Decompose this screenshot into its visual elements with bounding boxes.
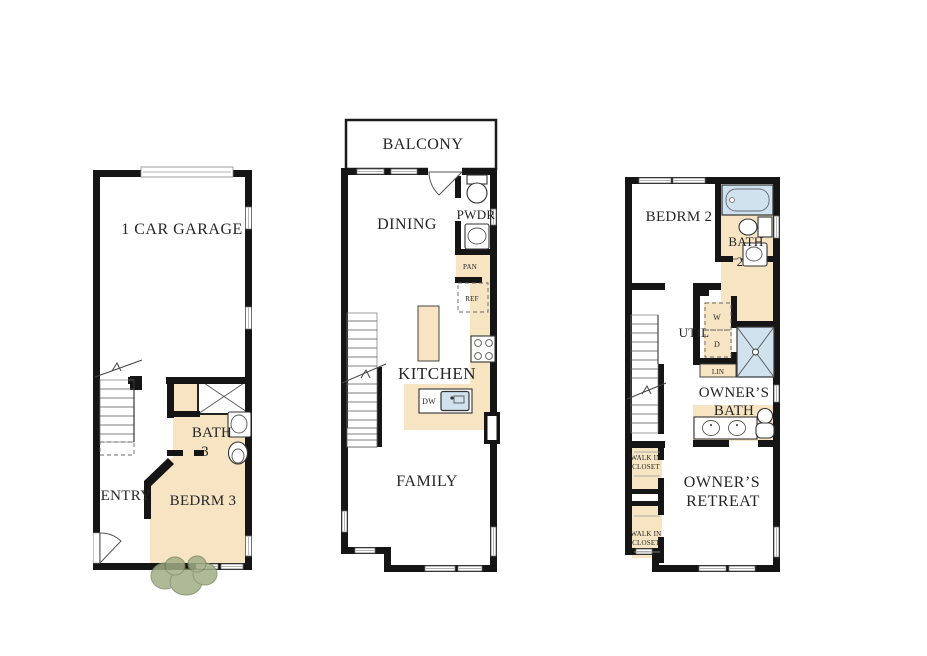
family-label: FAMILY <box>396 473 458 490</box>
kitchen-island <box>418 306 439 361</box>
floor-plan-canvas: 1 CAR GARAGE ENTRY BEDRM 3 BATH 3 <box>0 0 927 656</box>
bedrm3-label: BEDRM 3 <box>170 493 237 509</box>
washer-label: W <box>713 313 721 322</box>
owners-retreat-label-line1: OWNER’S <box>684 474 760 491</box>
pantry-label: PAN <box>463 263 477 271</box>
owners-toilet-icon <box>756 409 774 439</box>
bath3-label-line1: BATH <box>192 425 232 441</box>
refrigerator-label: REF <box>465 295 478 303</box>
bedrm2-label: BEDRM 2 <box>646 209 713 225</box>
entry-label: ENTRY <box>101 488 152 504</box>
pwdr-toilet-icon <box>467 175 487 203</box>
bath3-toilet-icon <box>229 442 248 464</box>
dishwasher-label: DW <box>422 397 436 406</box>
linen-label: LIN <box>712 368 724 376</box>
garage-door <box>141 167 233 177</box>
balcony-label: BALCONY <box>383 136 464 153</box>
first-floor-plan: 1 CAR GARAGE ENTRY BEDRM 3 BATH 3 <box>93 167 252 595</box>
walk-in-closet2-label-line2: CLOSET <box>632 539 660 547</box>
walk-in-closet1-label-line1: WALK IN <box>631 454 662 462</box>
pwdr-sink-icon <box>465 224 489 249</box>
third-floor-plan: BEDRM 2 BATH 2 UTIL W D LIN OWNER’S BATH… <box>625 177 780 572</box>
owners-retreat-label-line2: RETREAT <box>686 493 760 510</box>
door-jamb-opening <box>488 416 497 440</box>
kitchen-label: KITCHEN <box>398 364 476 383</box>
dryer-label: D <box>714 340 720 349</box>
stove-icon <box>471 336 495 362</box>
garage-label: 1 CAR GARAGE <box>121 221 243 238</box>
shower-bath3 <box>198 379 250 414</box>
walk-in-closet2-label-line1: WALK IN <box>631 530 662 538</box>
bath3-label-line2: 3 <box>201 444 209 460</box>
double-vanity-icon <box>694 417 757 439</box>
owners-shower <box>737 327 774 377</box>
front-door <box>94 533 122 563</box>
first-floor-stairs <box>95 360 142 455</box>
pwdr-label: PWDR <box>457 207 496 222</box>
bathtub-icon <box>722 185 773 215</box>
bath2-label-line1: BATH <box>728 234 763 249</box>
dining-label: DINING <box>377 216 437 233</box>
second-floor-plan: BALCONY DINING PWDR PAN REF KITCHEN DW F… <box>341 120 500 572</box>
walk-in-closet1-label-line2: CLOSET <box>632 463 660 471</box>
bath2-label-line2: 2 <box>737 254 744 269</box>
util-label: UTIL <box>679 325 710 340</box>
owners-bath-label-line1: OWNER’S <box>699 385 769 401</box>
owners-bath-label-line2: BATH <box>714 403 754 419</box>
floor-plan-drawing: 1 CAR GARAGE ENTRY BEDRM 3 BATH 3 <box>0 0 927 656</box>
